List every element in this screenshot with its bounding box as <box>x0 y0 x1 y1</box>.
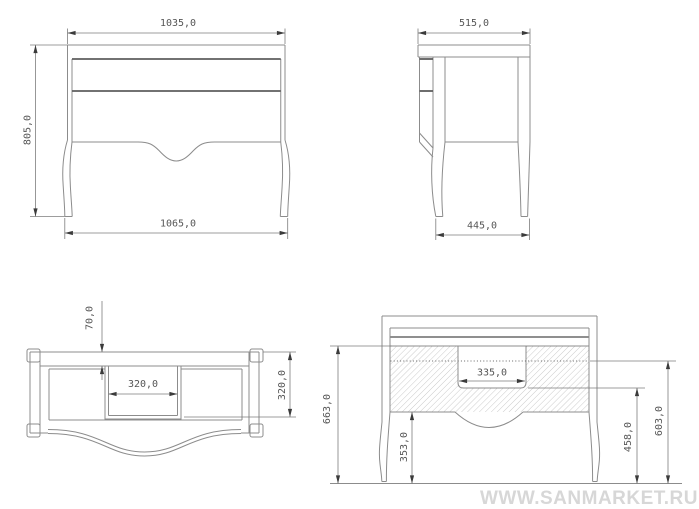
sink-cutout-outer <box>105 366 181 419</box>
dimension-feet-depth: 445,0 <box>436 219 530 241</box>
dimension-label: 70,0 <box>85 306 96 330</box>
dimension-top-width: 1035,0 <box>68 18 286 44</box>
left-leg-outer <box>379 422 382 482</box>
overhang-bottom-bevel <box>420 133 434 148</box>
dimension-apron-to-floor: 353,0 <box>399 412 412 484</box>
apron-curve <box>72 142 281 161</box>
dimension-label: 335,0 <box>477 368 507 379</box>
dimension-label: 320,0 <box>128 379 158 390</box>
dimension-cutout-width: 320,0 <box>109 379 178 394</box>
front-leg-inner <box>442 142 445 217</box>
side-view: 515,0 445,0 <box>418 18 530 240</box>
right-leg-outer <box>597 422 600 482</box>
right-leg-outer <box>285 140 290 217</box>
front-curve-outer <box>48 430 241 453</box>
dimension-label: 663,0 <box>322 394 333 424</box>
corner-post <box>27 424 40 437</box>
right-leg-inner <box>589 412 593 482</box>
dimension-height: 805,0 <box>23 45 65 217</box>
left-leg-inner <box>386 412 390 482</box>
left-leg-outer <box>63 140 68 217</box>
furniture-dimension-drawing: 1035,0 805,0 1065,0 <box>0 0 699 509</box>
dimension-label: 445,0 <box>467 221 497 232</box>
dimension-label: 1035,0 <box>160 18 196 29</box>
dimension-label: 805,0 <box>23 115 34 145</box>
back-leg-outer <box>528 142 530 217</box>
front-leg-outer <box>432 148 436 217</box>
dimension-label: 320,0 <box>277 370 288 400</box>
dimension-label: 515,0 <box>459 18 489 29</box>
dimension-top-depth: 515,0 <box>418 18 530 44</box>
back-leg-inner <box>518 142 521 217</box>
dimension-label: 603,0 <box>654 406 665 436</box>
corner-post <box>27 349 40 362</box>
plan-view: 70,0 320,0 320,0 <box>27 301 296 456</box>
dimension-back-offset: 70,0 <box>85 301 103 380</box>
section-view: 335,0 663,0 353,0 458,0 603,0 <box>322 316 682 484</box>
dimension-cutout-depth: 320,0 <box>184 352 296 417</box>
front-view: 1035,0 805,0 1065,0 <box>23 18 290 239</box>
front-curve-inner <box>48 434 241 457</box>
technical-drawing-canvas: 1035,0 805,0 1065,0 <box>0 0 699 509</box>
dimension-label: 458,0 <box>623 422 634 452</box>
right-leg-inner <box>280 142 282 217</box>
overhang-bottom-bevel <box>420 142 434 157</box>
watermark: WWW.SANMARKET.RU <box>480 488 698 509</box>
corner-post <box>250 424 263 437</box>
corner-post <box>250 349 263 362</box>
left-leg-inner <box>70 142 72 217</box>
dimension-label: 1065,0 <box>160 219 196 230</box>
dimension-label: 353,0 <box>399 432 410 462</box>
dimension-feet-width: 1065,0 <box>65 218 288 239</box>
apron-arc <box>455 412 523 428</box>
